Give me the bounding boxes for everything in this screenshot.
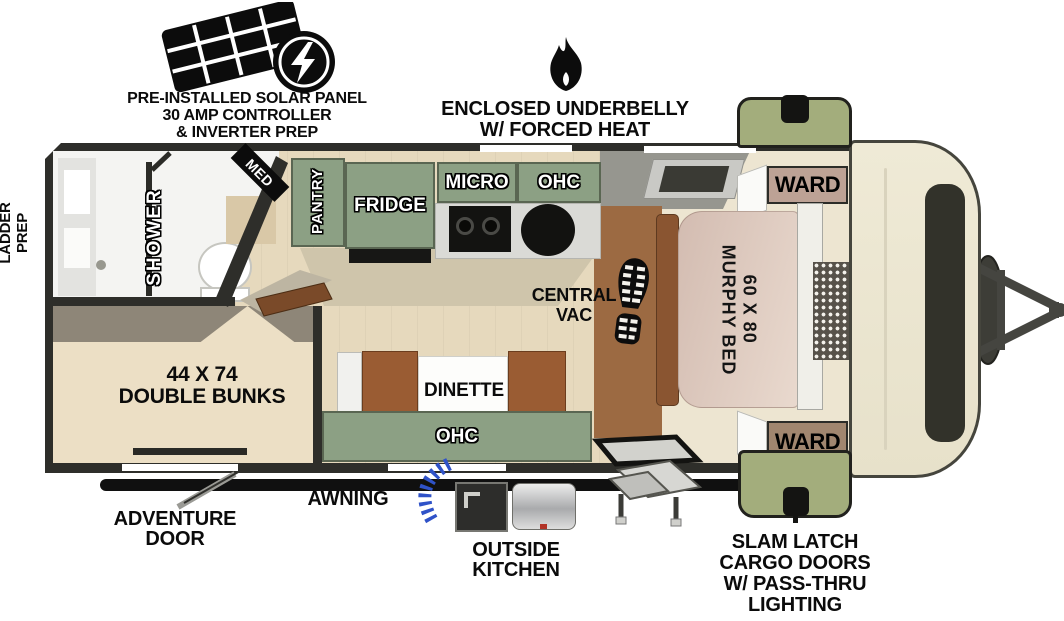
central-vac-label: CENTRAL VAC	[514, 285, 634, 325]
murphy-bed-size: 60 X 80	[739, 244, 760, 375]
murphy-bed: 60 X 80 MURPHY BED	[678, 211, 799, 408]
fridge-label: FRIDGE	[354, 195, 426, 217]
cargo-doors-callout: SLAM LATCH CARGO DOORS W/ PASS-THRU LIGH…	[712, 532, 878, 616]
griddle-knob	[540, 524, 547, 529]
slam-latch	[783, 487, 809, 516]
wardrobe-top: WARD	[767, 166, 848, 204]
overhead-cabinet-label: OHC	[436, 426, 478, 448]
interior-wall	[45, 297, 235, 306]
central-vac-line: VAC	[514, 305, 634, 325]
burner	[482, 217, 500, 235]
cargo-doors-line: LIGHTING	[712, 595, 878, 616]
microwave-label: MICRO	[445, 172, 508, 194]
bunk-ladder-slot	[133, 448, 247, 455]
adventure-door-line: DOOR	[95, 529, 255, 549]
kitchen-sink	[521, 204, 575, 256]
murphy-bed-name: MURPHY BED	[718, 244, 739, 375]
solar-callout-line: & INVERTER PREP	[97, 124, 397, 141]
outside-griddle	[512, 483, 576, 530]
latch-pin	[793, 516, 798, 523]
outside-kitchen-line: OUTSIDE	[446, 540, 586, 560]
ladder-prep-line: PREP	[14, 172, 31, 294]
ladder-prep-callout: LADDER PREP	[0, 172, 33, 294]
sofa-backrest	[656, 214, 679, 406]
dinette-label: DINETTE	[404, 381, 524, 402]
solar-callout-line: 30 AMP CONTROLLER	[97, 107, 397, 124]
bunks-size: 44 X 74	[82, 364, 322, 386]
bed-runner-mat	[813, 262, 849, 360]
flame-icon	[543, 36, 589, 96]
overhead-cabinet-label: OHC	[538, 172, 580, 194]
cargo-doors-line: SLAM LATCH	[712, 532, 878, 553]
toilet	[198, 242, 252, 292]
awning-callout: AWNING	[288, 489, 408, 511]
underbelly-callout-line: W/ FORCED HEAT	[415, 120, 715, 141]
bunks-name: DOUBLE BUNKS	[82, 386, 322, 408]
central-vac-line: CENTRAL	[514, 285, 634, 305]
microwave-cabinet: MICRO	[437, 162, 517, 203]
underbelly-callout: ENCLOSED UNDERBELLY W/ FORCED HEAT	[415, 99, 715, 141]
slam-latch	[781, 95, 809, 123]
cargo-doors-line: CARGO DOORS	[712, 553, 878, 574]
outside-kitchen-line: KITCHEN	[446, 560, 586, 580]
burner	[456, 217, 474, 235]
dinette-partition	[337, 352, 362, 414]
fridge-cabinet: FRIDGE	[345, 162, 435, 249]
front-cap-seam	[884, 168, 887, 450]
overhead-cabinet-dinette: OHC	[322, 411, 592, 462]
bathroom-vanity	[226, 196, 276, 244]
window-slot	[388, 464, 506, 471]
solar-callout: PRE-INSTALLED SOLAR PANEL 30 AMP CONTROL…	[97, 90, 397, 141]
cargo-doors-line: W/ PASS-THRU	[712, 574, 878, 595]
pantry-label: PANTRY	[308, 155, 328, 247]
bathroom-fixture	[64, 228, 90, 268]
awning-bar	[100, 479, 772, 491]
shower-head	[96, 260, 106, 270]
adventure-door-line: ADVENTURE	[95, 509, 255, 529]
murphy-bed-label: 60 X 80 MURPHY BED	[718, 244, 760, 375]
ac-vent-grille	[659, 166, 729, 192]
window-slot	[480, 145, 572, 152]
outside-kitchen-callout: OUTSIDE KITCHEN	[446, 540, 586, 580]
window-slot	[122, 464, 238, 471]
solar-panel-icon	[152, 2, 352, 97]
fridge-base	[349, 249, 431, 263]
outside-faucet	[464, 492, 480, 508]
floorplan-diagram: PRE-INSTALLED SOLAR PANEL 30 AMP CONTROL…	[0, 0, 1064, 621]
solar-callout-line: PRE-INSTALLED SOLAR PANEL	[97, 90, 397, 107]
double-bunks-label: 44 X 74 DOUBLE BUNKS	[82, 364, 322, 408]
bathroom-fixture	[64, 170, 90, 214]
ladder-prep-line: LADDER	[0, 172, 14, 294]
adventure-door-callout: ADVENTURE DOOR	[95, 509, 255, 549]
overhead-cabinet-kitchen: OHC	[517, 162, 601, 203]
outside-kitchen-sink	[455, 482, 508, 532]
front-window	[925, 184, 965, 442]
shower-label: SHOWER	[143, 167, 167, 307]
wardrobe-label: WARD	[775, 172, 840, 198]
underbelly-callout-line: ENCLOSED UNDERBELLY	[415, 99, 715, 120]
